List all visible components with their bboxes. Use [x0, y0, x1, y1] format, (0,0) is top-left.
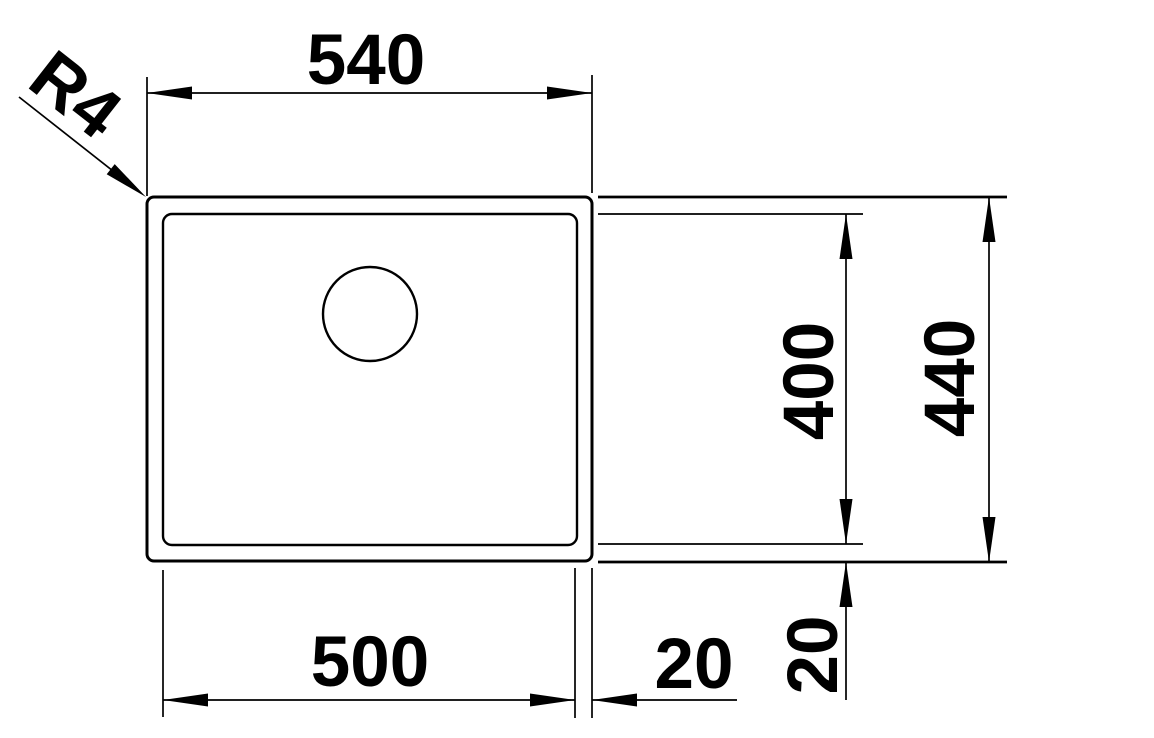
arrowhead-left-icon — [592, 694, 637, 707]
dimension-bottom-group: 500 20 — [163, 568, 737, 718]
sink-dimension-drawing: 540 R4 400 440 20 — [0, 0, 1154, 738]
arrowhead-up-icon — [840, 214, 853, 259]
arrowhead-down-icon — [983, 517, 996, 562]
arrowhead-right-icon — [547, 87, 592, 100]
dimension-label-overall-depth: 440 — [911, 319, 990, 437]
technical-drawing-canvas: 540 R4 400 440 20 — [0, 0, 1154, 738]
dimension-label-rim-offset-right: 20 — [655, 625, 734, 704]
dimension-label-rim-offset-bottom: 20 — [774, 616, 853, 695]
sink-outer-rect — [147, 197, 592, 561]
arrowhead-down-icon — [840, 499, 853, 544]
dimension-label-bowl-width: 500 — [311, 623, 429, 702]
arrowhead-right-icon — [530, 694, 575, 707]
dimension-overall-width: 540 — [147, 21, 592, 196]
arrowhead-left-icon — [163, 694, 208, 707]
dimension-label-bowl-depth: 400 — [770, 322, 849, 440]
arrowhead-left-icon — [147, 87, 192, 100]
dimension-label-corner-radius: R4 — [15, 36, 136, 154]
arrowhead-up-icon — [840, 562, 853, 607]
sink-outline-group — [147, 197, 592, 561]
dimension-label-overall-width: 540 — [307, 21, 425, 100]
sink-bowl-rect — [163, 214, 577, 545]
leader-arrowhead-icon — [107, 164, 146, 197]
drain-hole-circle — [323, 267, 417, 361]
arrowhead-up-icon — [983, 197, 996, 242]
radius-callout: R4 — [15, 36, 146, 197]
